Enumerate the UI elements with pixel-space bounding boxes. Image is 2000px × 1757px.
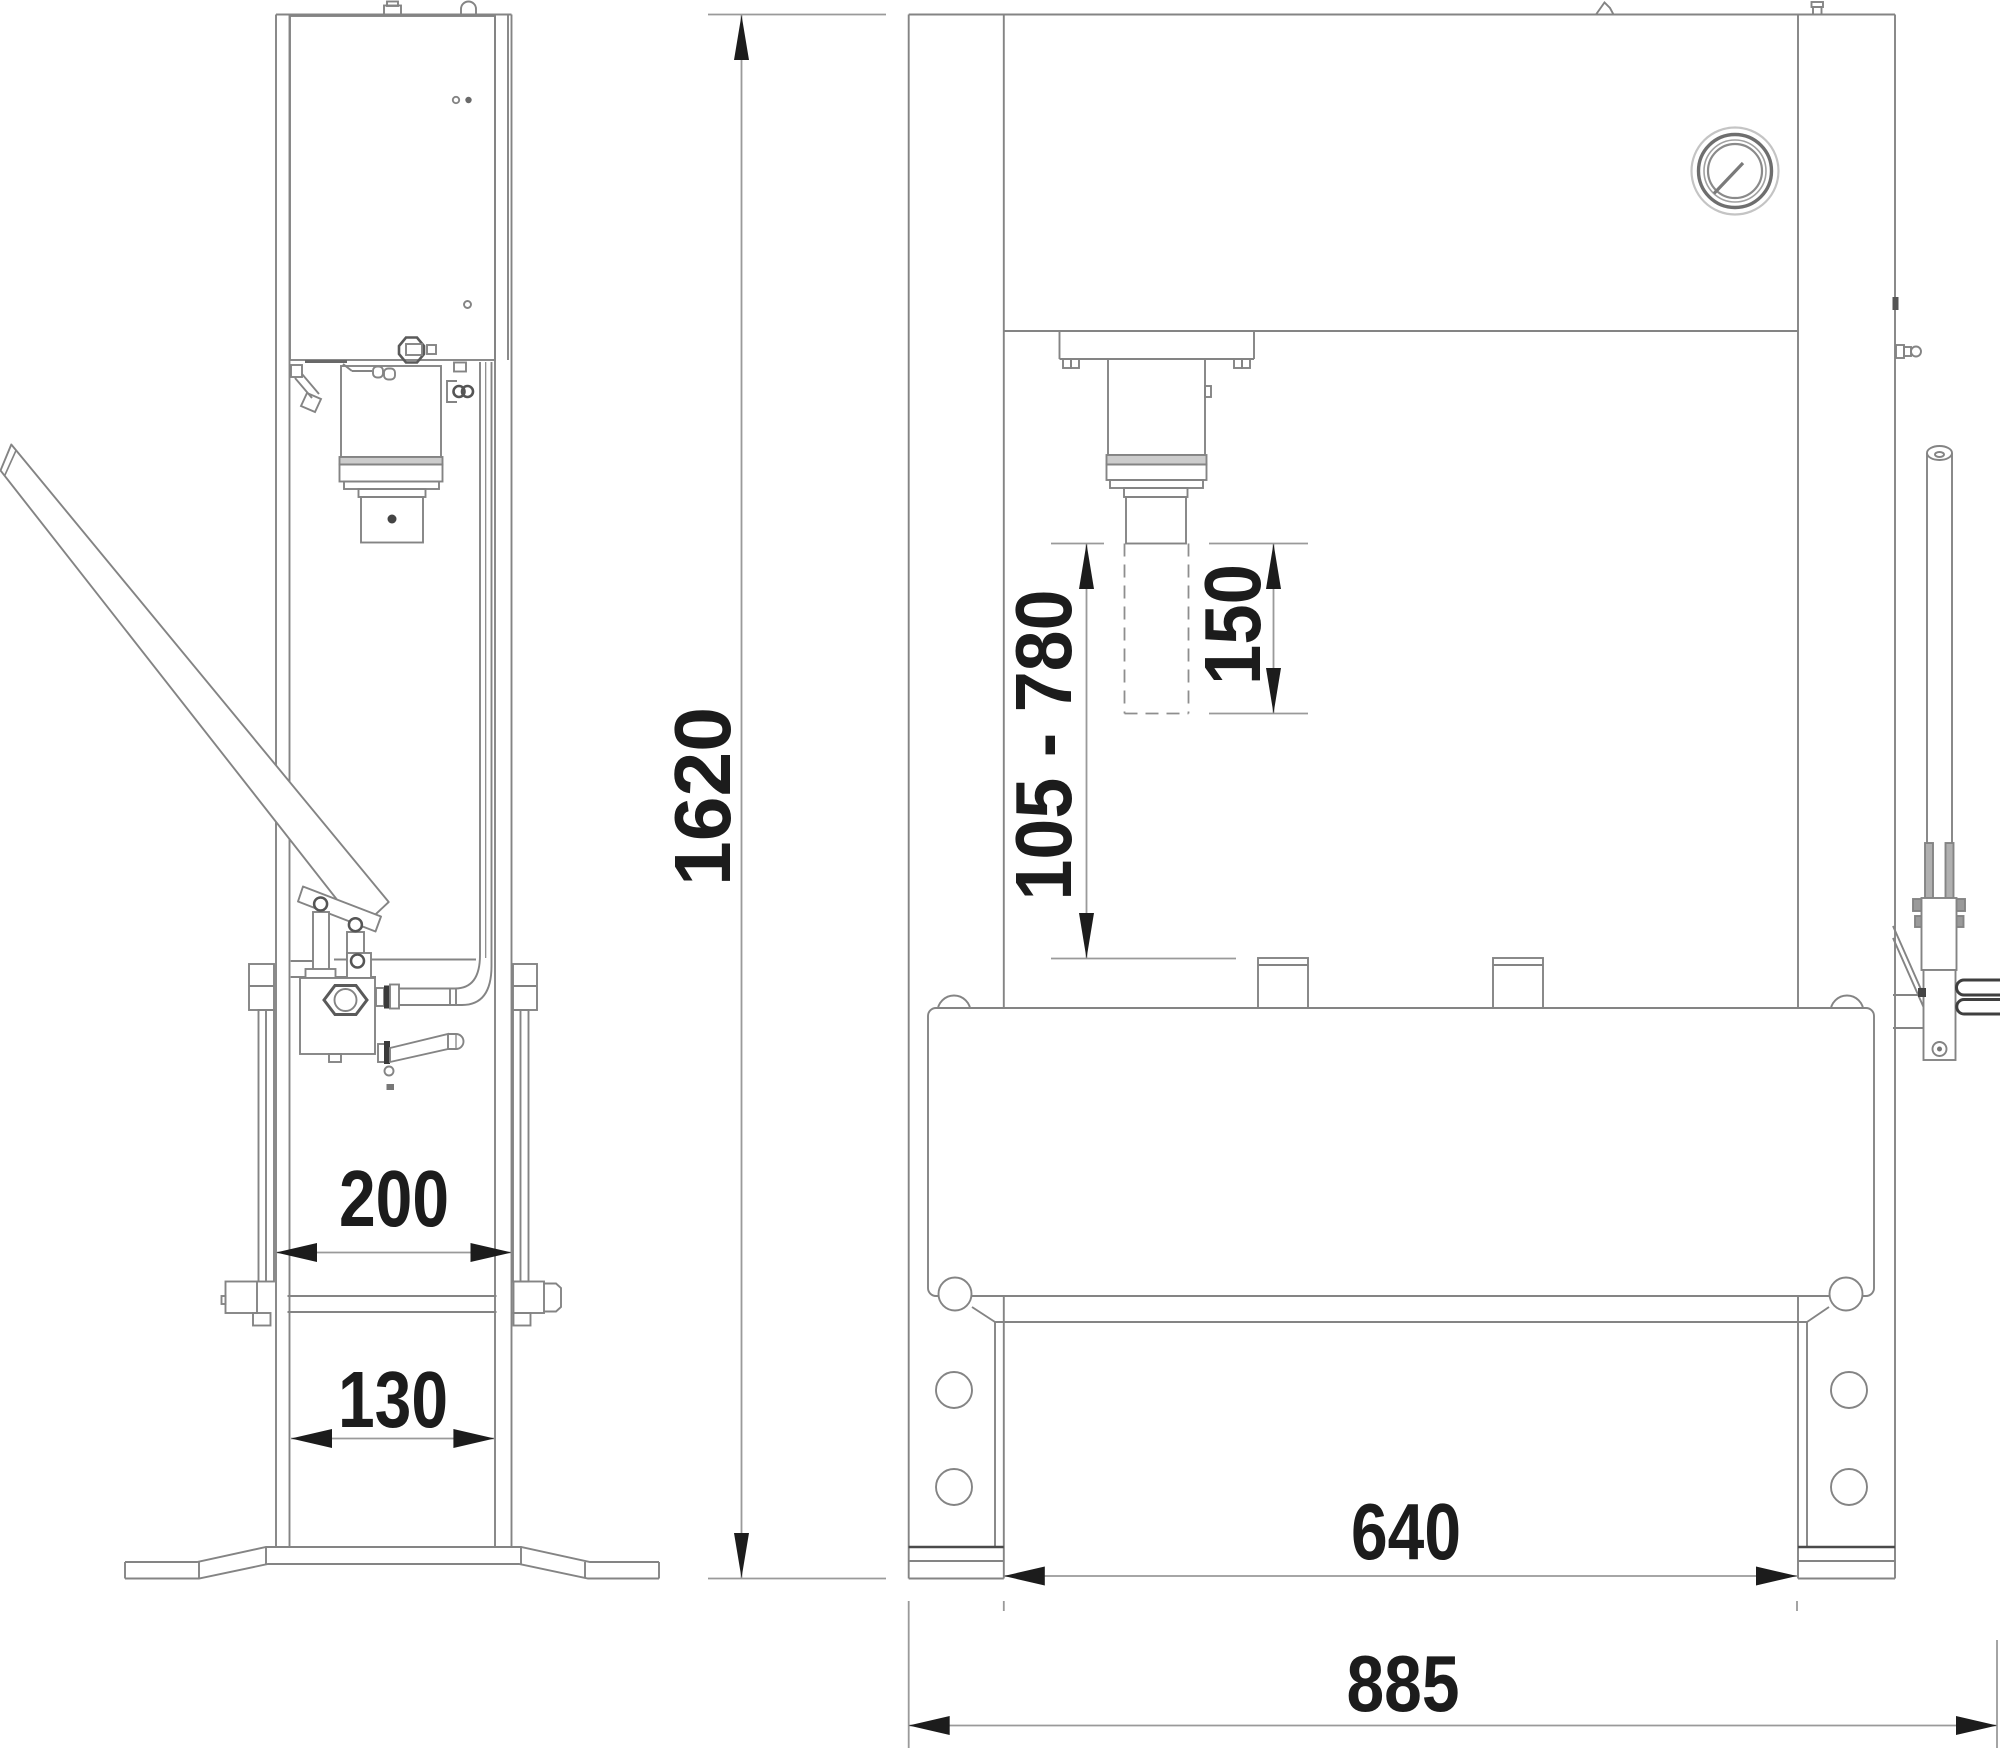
svg-text:640: 640 [1351,1487,1461,1576]
svg-text:1620: 1620 [658,707,747,886]
svg-text:150: 150 [1188,564,1277,685]
svg-text:200: 200 [339,1154,449,1243]
svg-text:105 - 780: 105 - 780 [999,590,1088,901]
svg-text:130: 130 [338,1355,448,1444]
svg-text:885: 885 [1347,1639,1460,1728]
